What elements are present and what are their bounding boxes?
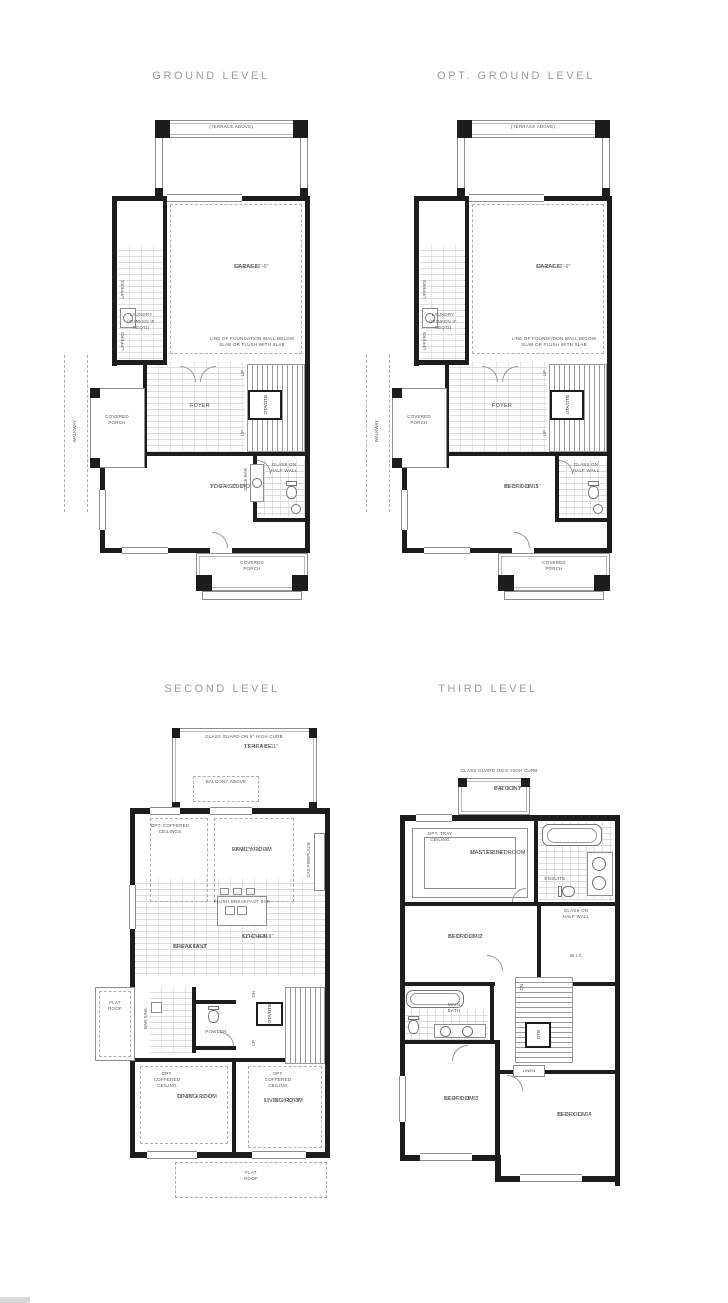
wall-segment — [495, 1040, 500, 1156]
elevator-label: OTA/OTB — [565, 395, 570, 414]
floor-plan-sheet: GROUND LEVEL OPT. GROUND LEVEL SECOND LE… — [0, 0, 728, 1303]
elevator-label: OTB — [536, 1030, 541, 1039]
label-walkway: WALKWAY — [374, 420, 379, 442]
label-glass-half-wall: GLASS ON HALF WALL — [562, 908, 590, 920]
floor-plan-third: OTB GLASS GUARD ON 6' HIGH CURB BALCONY … — [392, 740, 628, 1200]
toilet — [562, 886, 575, 897]
door-swing-arc — [514, 532, 530, 548]
wall-segment — [305, 456, 310, 553]
wall-post — [457, 120, 472, 138]
label-up: UP — [251, 1040, 256, 1046]
sink — [593, 504, 603, 514]
wall-segment — [130, 808, 135, 1158]
room-dims: 11'-10" X 12'-0" — [177, 1094, 214, 1101]
label-uppers: UPPERS — [120, 280, 125, 299]
label-laundry-note: (SUNKEN IF REQ'D) — [123, 319, 159, 331]
label-uppers: UPPERS — [422, 280, 427, 299]
wall-segment — [607, 456, 612, 553]
room-label-powder: POWDER — [205, 1029, 226, 1035]
label-opt-coffered-ceilings: OPT. COFFERED CEILINGS — [149, 823, 191, 835]
label-glass-guard: GLASS GUARD ON 6" HIGH CURB — [205, 734, 283, 740]
wall-post — [309, 728, 317, 738]
wall-segment — [555, 518, 612, 522]
label-laundry-note: (SUNKEN IF REQ'D) — [425, 319, 461, 331]
balcony-outline — [458, 778, 530, 815]
wall-post — [90, 458, 100, 468]
label-terrace-above: (TERRACE ABOVE) — [209, 124, 253, 130]
wall-post — [196, 575, 212, 591]
label-balcony-above: BALCONY ABOVE — [206, 779, 247, 785]
wall-segment — [537, 902, 615, 906]
wall-post — [292, 575, 308, 591]
window — [401, 490, 408, 530]
room-label-foyer: FOYER — [190, 403, 210, 410]
wall-segment — [405, 902, 535, 906]
room-dims: 17'-9" X 12'-0" — [210, 484, 245, 491]
room-label-foyer: FOYER — [492, 403, 512, 410]
wall-segment — [112, 196, 117, 366]
label-up: UP — [240, 430, 245, 436]
elevator-shaft: OTB — [525, 1022, 551, 1048]
room-dims: 21'-10" X 11'-4" — [232, 847, 269, 854]
foundation-dashed-line — [472, 204, 604, 354]
window — [520, 1174, 582, 1182]
room-label-laundry: LAUNDRY — [432, 312, 455, 318]
wall-post — [392, 458, 402, 468]
fireplace — [314, 833, 325, 891]
door-swing-arc — [212, 532, 228, 548]
toilet — [286, 486, 297, 499]
label-uppers: UPPERS — [422, 332, 427, 351]
label-glass-half-wall: GLASS ON HALF WALL — [270, 462, 298, 474]
elevator-shaft: OTA/OTB — [550, 390, 584, 420]
window — [210, 807, 252, 815]
porch-step — [202, 591, 302, 600]
wall-post — [458, 778, 467, 787]
label-glass-guard: GLASS GUARD ON 6' HIGH CURB — [460, 768, 537, 774]
wall-segment — [400, 1040, 495, 1044]
plan-title-second: SECOND LEVEL — [164, 683, 280, 695]
wall-segment — [253, 518, 310, 522]
label-bar-sink: BAR SINK — [143, 1008, 148, 1029]
wall-post — [595, 120, 610, 138]
wall-segment — [490, 986, 494, 1044]
wall-post — [594, 575, 610, 591]
wall-segment — [449, 452, 611, 456]
wall-post — [392, 388, 402, 398]
wall-segment — [414, 196, 419, 366]
label-dn: DN — [519, 984, 524, 991]
label-up: UP — [542, 430, 547, 436]
room-label-covered-porch: COVERED PORCH — [538, 560, 570, 572]
label-up: UP — [240, 370, 245, 376]
room-dims: 17'-1" X 20'-0" — [536, 264, 571, 271]
sink — [440, 1026, 451, 1037]
label-opt-tray-ceiling: OPT. TRAY CEILING — [426, 831, 454, 843]
plan-title-third: THIRD LEVEL — [438, 683, 538, 695]
tray-ceiling-outline — [424, 837, 516, 889]
room-dims: 17'-4" X 8'-11" — [244, 744, 278, 751]
wall-post — [90, 388, 100, 398]
wall-post — [172, 728, 180, 738]
wall-segment — [163, 201, 167, 361]
room-label-covered-porch: COVERED PORCH — [101, 414, 133, 426]
island-sink — [225, 906, 235, 915]
room-label-covered-porch: COVERED PORCH — [403, 414, 435, 426]
room-dims: 17'-1" X 20'-0" — [234, 264, 269, 271]
staircase — [285, 987, 325, 1064]
room-dims: 7'-2" X 3'-7" — [494, 786, 523, 793]
room-label-flat-roof: FLAT ROOF — [239, 1170, 263, 1182]
wall-segment — [232, 1062, 236, 1152]
window — [416, 814, 452, 822]
label-juice-bar: JUICE BAR — [243, 468, 248, 492]
label-opt-coffered-ceiling: OPT. COFFERED CEILING — [148, 1071, 186, 1089]
wall-post — [498, 575, 514, 591]
floor-plan-opt-ground: OTA/OTB (TERRACE ABOVE) GARAGE 17'-1" X … — [364, 112, 620, 604]
floor-plan-second: OTA/OTB GLASS GUARD ON 6" HIGH CURB TERR… — [92, 700, 338, 1200]
porch-step — [504, 591, 604, 600]
window — [252, 1151, 306, 1159]
label-flush-breakfast-bar: FLUSH BREAKFAST BAR — [214, 899, 271, 905]
page-edge-mark — [0, 1297, 30, 1303]
door-swing-arc — [507, 1075, 523, 1091]
plan-title-ground: GROUND LEVEL — [152, 70, 269, 82]
room-label-wic: W.I.C — [570, 953, 582, 959]
bar-stool — [246, 888, 255, 895]
plan-title-opt-ground: OPT. GROUND LEVEL — [437, 70, 595, 82]
wall-segment — [196, 1000, 236, 1004]
toilet — [208, 1010, 219, 1023]
sink — [592, 857, 606, 871]
foundation-dashed-line — [170, 204, 302, 354]
window — [122, 547, 168, 554]
label-dn: DN — [251, 991, 256, 998]
window — [424, 547, 470, 554]
wall-segment — [615, 815, 620, 1186]
toilet — [408, 1020, 419, 1034]
room-dims: 12'-4" X 11'-5" — [444, 1096, 478, 1103]
label-gas-fireplace: GAS FIREPLACE — [306, 842, 311, 878]
label-terrace-above: (TERRACE ABOVE) — [511, 124, 555, 130]
island-sink — [237, 906, 247, 915]
room-label-ensuite: ENSUITE — [545, 876, 566, 882]
room-dims: 11'-0" X 13'-0" — [173, 944, 207, 951]
wall-post — [155, 120, 170, 138]
room-label-flat-roof: FLAT ROOF — [103, 1000, 127, 1012]
wall-segment — [607, 196, 612, 456]
room-label-linen: LINEN — [523, 1068, 536, 1073]
toilet — [588, 486, 599, 499]
wall-segment — [196, 1046, 236, 1050]
room-label-laundry: LAUNDRY — [130, 312, 153, 318]
room-dims: 12'-0" X 10'-0" — [448, 934, 483, 941]
elevator-label: OTA/OTB — [267, 1004, 272, 1023]
window — [147, 1151, 197, 1159]
wall-segment — [537, 906, 541, 982]
garage-door — [469, 194, 544, 202]
window — [129, 885, 136, 929]
label-glass-half-wall: GLASS ON HALF WALL — [572, 462, 600, 474]
door-swing-arc — [487, 955, 503, 971]
label-uppers: UPPERS — [120, 332, 125, 351]
sink — [592, 876, 606, 890]
sink — [252, 478, 262, 488]
room-dims: 12'-4" X 8'-9" — [242, 934, 274, 941]
garage-door — [167, 194, 242, 202]
window — [399, 1076, 406, 1122]
door-swing-arc — [452, 1045, 468, 1061]
wall-segment — [414, 360, 469, 365]
bathtub-basin — [547, 828, 597, 843]
room-label-covered-porch: COVERED PORCH — [236, 560, 268, 572]
wall-segment — [192, 987, 196, 1053]
bar-stool — [233, 888, 242, 895]
elevator-shaft: OTA/OTB — [248, 390, 282, 420]
wall-segment — [147, 452, 309, 456]
label-foundation-note: LINE OF FOUNDATION WALL BELOW SLAB OR FL… — [206, 336, 298, 348]
elevator-shaft: OTA/OTB — [256, 1002, 283, 1026]
label-foundation-note: LINE OF FOUNDATION WALL BELOW SLAB OR FL… — [508, 336, 600, 348]
window — [99, 490, 106, 530]
label-walkway: WALKWAY — [72, 420, 77, 442]
covered-porch-outline — [392, 388, 447, 468]
wall-segment — [405, 982, 495, 986]
window — [420, 1153, 472, 1161]
room-dims: 15'-5" X 11'-0" — [470, 850, 504, 857]
floor-plan-ground: OTA/OTB (TERRACE ABOVE) GARAGE 17'-1" X … — [62, 112, 318, 604]
room-dims: 11'-10" X 13'-5" — [264, 1098, 301, 1105]
wall-segment — [305, 196, 310, 456]
elevator-label: OTA/OTB — [263, 395, 268, 414]
wall-segment — [534, 820, 538, 906]
window — [150, 807, 180, 815]
label-opt-coffered-ceiling: OPT. COFFERED CEILING — [259, 1071, 297, 1089]
room-label-main-bath: MAIN BATH — [442, 1002, 466, 1014]
covered-porch-outline — [90, 388, 145, 468]
bar-stool — [220, 888, 229, 895]
wall-segment — [465, 201, 469, 361]
wall-segment — [325, 808, 330, 1158]
sink — [462, 1026, 473, 1037]
label-up: UP — [542, 370, 547, 376]
room-dims: 11'-0" X 11'-1" — [557, 1112, 591, 1119]
wall-segment — [112, 360, 167, 365]
sink — [291, 504, 301, 514]
brick-floor — [150, 987, 195, 1053]
wall-post — [293, 120, 308, 138]
bar-sink-counter — [151, 1002, 162, 1013]
room-dims: 15'-5" X 11'-11" — [504, 484, 541, 491]
